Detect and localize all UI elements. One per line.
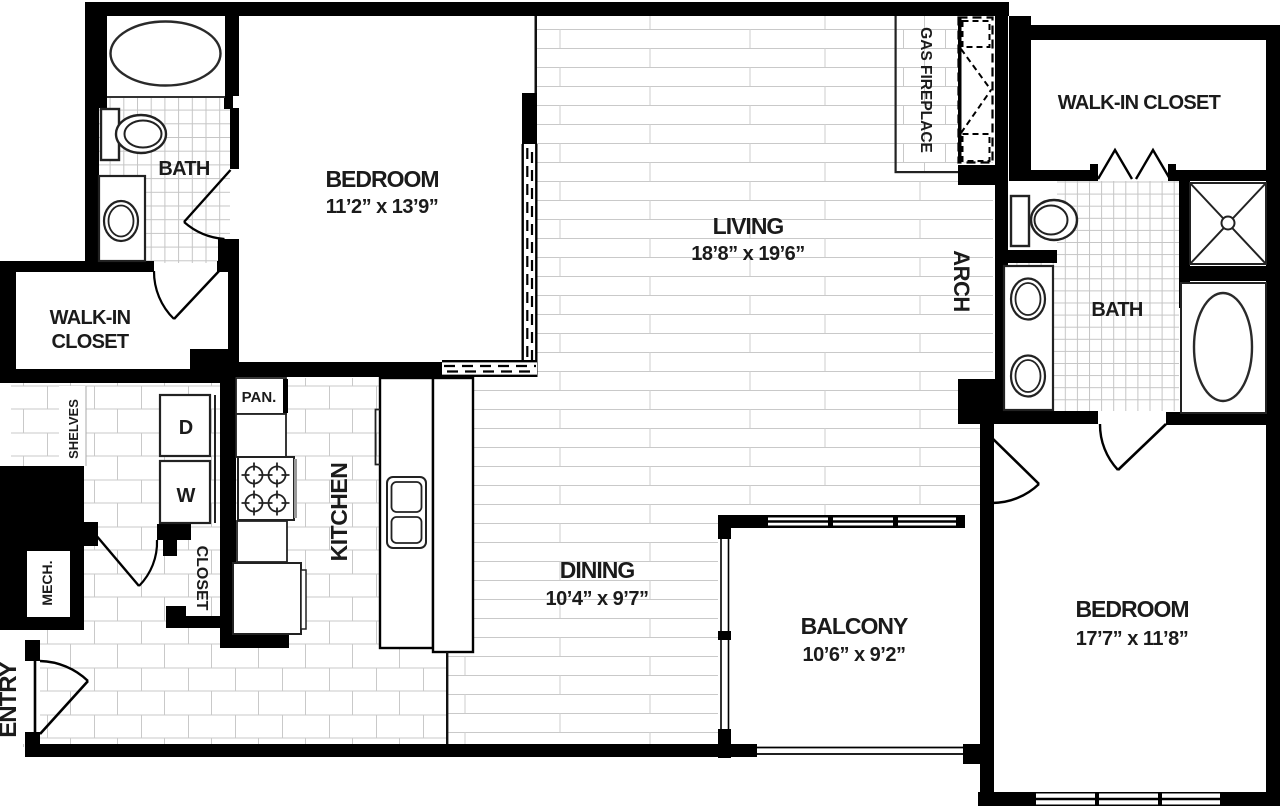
svg-text:GAS FIREPLACE: GAS FIREPLACE bbox=[917, 27, 934, 153]
svg-text:18’8” x 19’6”: 18’8” x 19’6” bbox=[691, 243, 805, 265]
svg-text:BATH: BATH bbox=[1091, 299, 1143, 321]
svg-text:SHELVES: SHELVES bbox=[66, 399, 81, 459]
svg-text:W: W bbox=[177, 485, 196, 507]
svg-text:WALK-IN CLOSET: WALK-IN CLOSET bbox=[1058, 92, 1221, 114]
svg-text:BEDROOM: BEDROOM bbox=[1075, 596, 1188, 622]
svg-text:CLOSET: CLOSET bbox=[193, 546, 210, 611]
svg-text:10’6” x 9’2”: 10’6” x 9’2” bbox=[803, 644, 906, 666]
svg-text:ENTRY: ENTRY bbox=[0, 661, 22, 737]
svg-text:MECH.: MECH. bbox=[39, 560, 55, 605]
svg-text:17’7” x 11’8”: 17’7” x 11’8” bbox=[1076, 628, 1188, 650]
svg-text:BATH: BATH bbox=[158, 158, 210, 180]
svg-text:WALK-IN: WALK-IN bbox=[50, 307, 131, 329]
svg-text:LIVING: LIVING bbox=[713, 213, 784, 239]
svg-text:CLOSET: CLOSET bbox=[52, 331, 129, 353]
svg-text:D: D bbox=[179, 417, 193, 439]
svg-text:PAN.: PAN. bbox=[242, 389, 277, 406]
svg-text:KITCHEN: KITCHEN bbox=[326, 463, 352, 562]
svg-text:10’4” x 9’7”: 10’4” x 9’7” bbox=[546, 588, 649, 610]
svg-text:BALCONY: BALCONY bbox=[801, 613, 908, 639]
svg-text:BEDROOM: BEDROOM bbox=[325, 166, 438, 192]
svg-text:11’2” x 13’9”: 11’2” x 13’9” bbox=[326, 196, 438, 218]
svg-text:ARCH: ARCH bbox=[949, 250, 974, 312]
svg-text:DINING: DINING bbox=[560, 557, 635, 583]
